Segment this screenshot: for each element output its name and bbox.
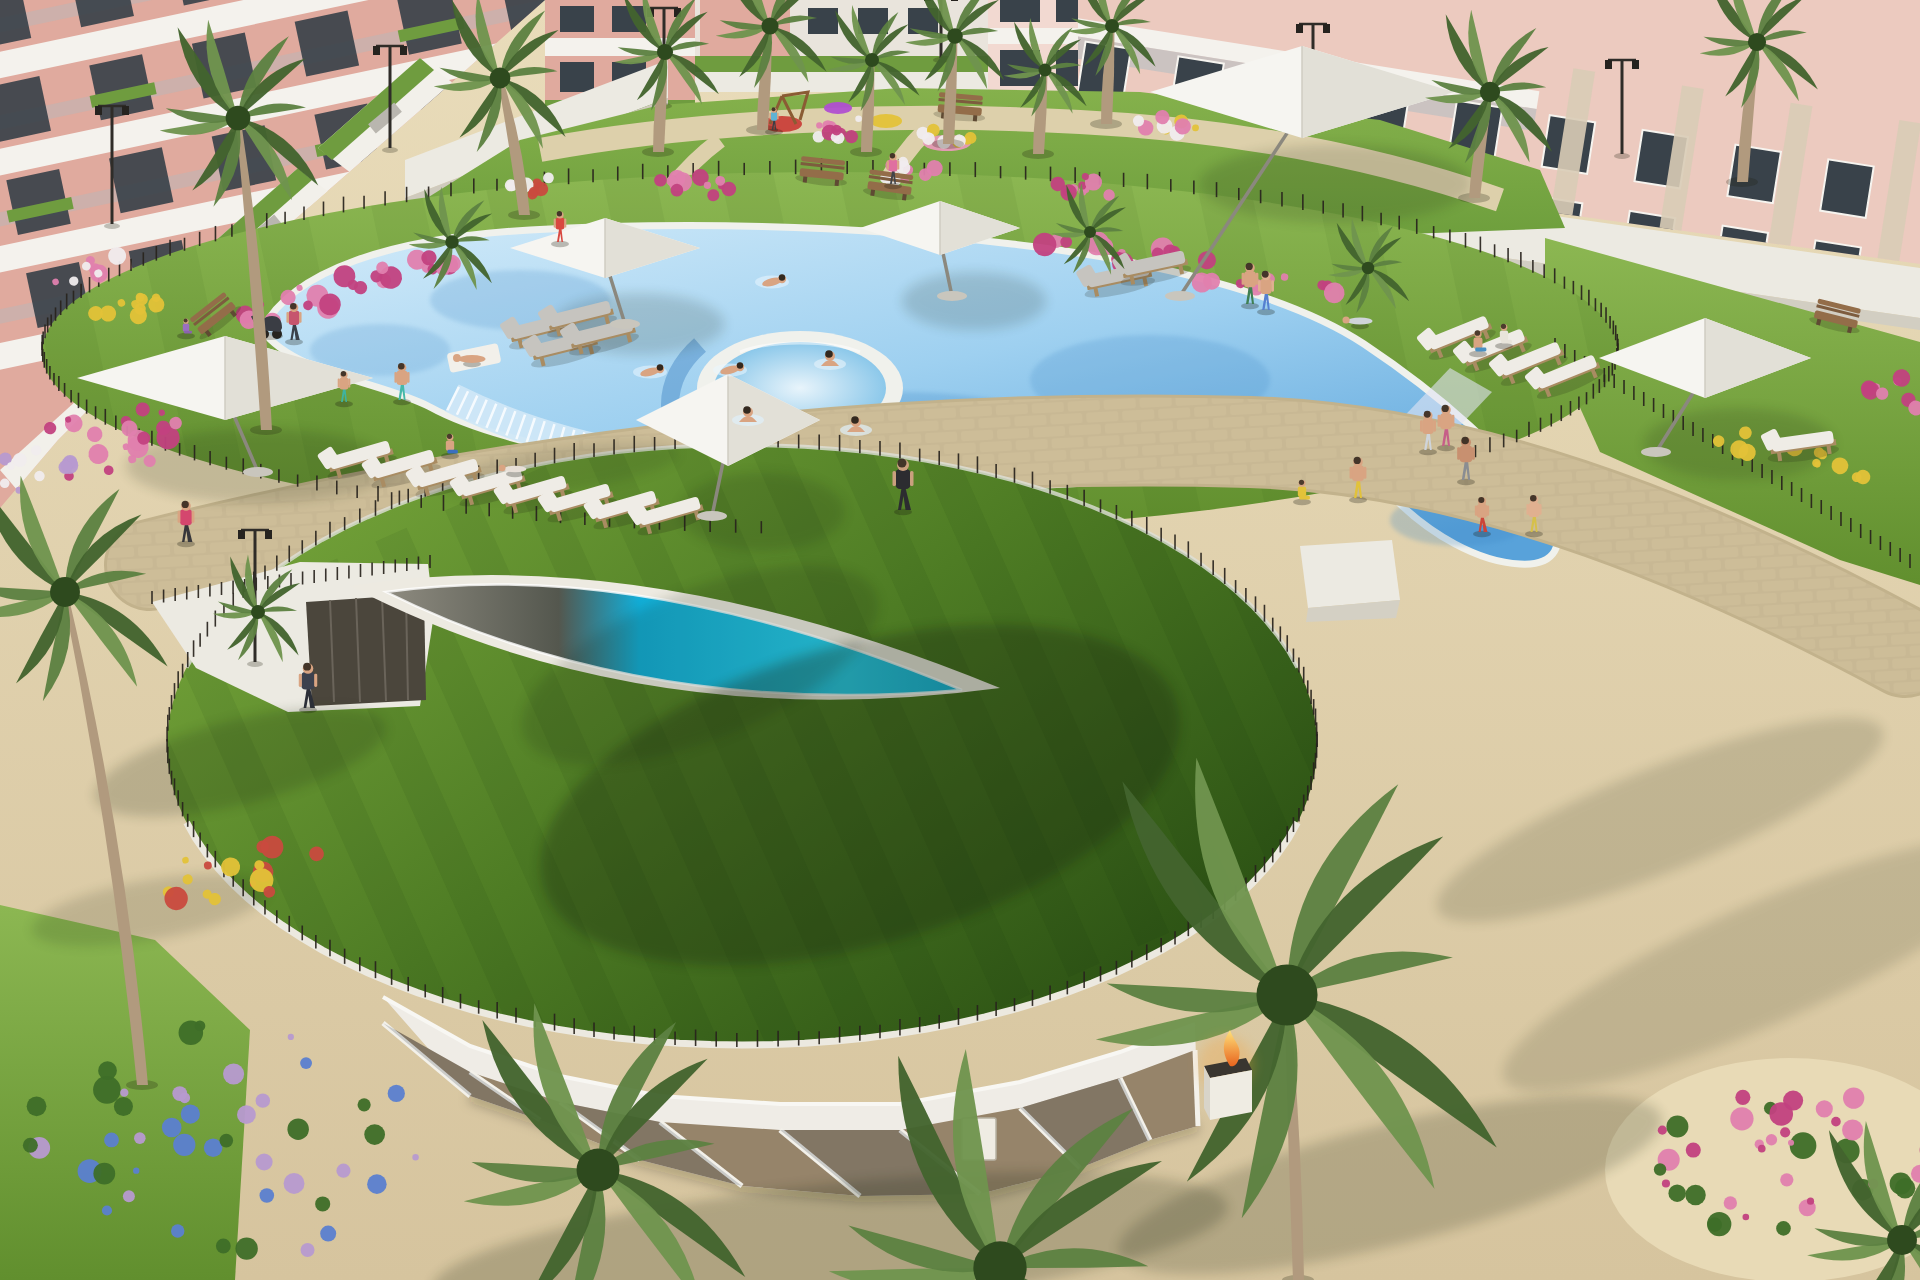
- umbrella-base: [937, 291, 967, 301]
- resort-aerial-render: Aerial 3D render — resort apartment comp…: [0, 0, 1920, 1280]
- palm-crown-core: [577, 1149, 620, 1192]
- window: [295, 11, 359, 77]
- palm-crown-core: [1256, 964, 1317, 1025]
- palm-crown-core: [657, 44, 673, 60]
- roof-skylight-box: [1300, 540, 1400, 608]
- umbrella-base: [1165, 291, 1195, 301]
- palm-crown-core: [490, 68, 511, 89]
- play-disc: [870, 114, 902, 128]
- palm-crown-core: [1105, 19, 1119, 33]
- palm-crown-core: [761, 17, 778, 34]
- palm-crown-core: [251, 605, 265, 619]
- palm-crown-core: [1039, 64, 1052, 77]
- palm-crown-core: [445, 235, 459, 249]
- palm-crown-core: [1887, 1225, 1917, 1255]
- palm-crown-core: [50, 577, 80, 607]
- palm-crown-core: [947, 28, 963, 44]
- palm-crown-core: [1480, 82, 1500, 102]
- palm-crown-core: [865, 53, 879, 67]
- canopy-shadow: [902, 272, 1046, 330]
- window: [1727, 145, 1781, 204]
- palm-crown-core: [1362, 262, 1374, 274]
- palm-crown-core: [1748, 33, 1766, 51]
- palm-crown-core: [1084, 226, 1096, 238]
- window: [109, 147, 173, 213]
- umbrella-base: [697, 511, 727, 521]
- window: [1820, 159, 1874, 218]
- umbrella-base: [610, 319, 640, 329]
- play-disc: [824, 102, 852, 114]
- render-viewport: Aerial 3D render — resort apartment comp…: [0, 0, 1920, 1280]
- facade-mullion: [1195, 1050, 1198, 1126]
- canopy-shadow: [1199, 145, 1473, 224]
- fire-bowl-front: [1210, 1070, 1252, 1120]
- umbrella-base: [243, 467, 273, 477]
- palm-crown-core: [226, 106, 251, 131]
- umbrella-base: [1641, 447, 1671, 457]
